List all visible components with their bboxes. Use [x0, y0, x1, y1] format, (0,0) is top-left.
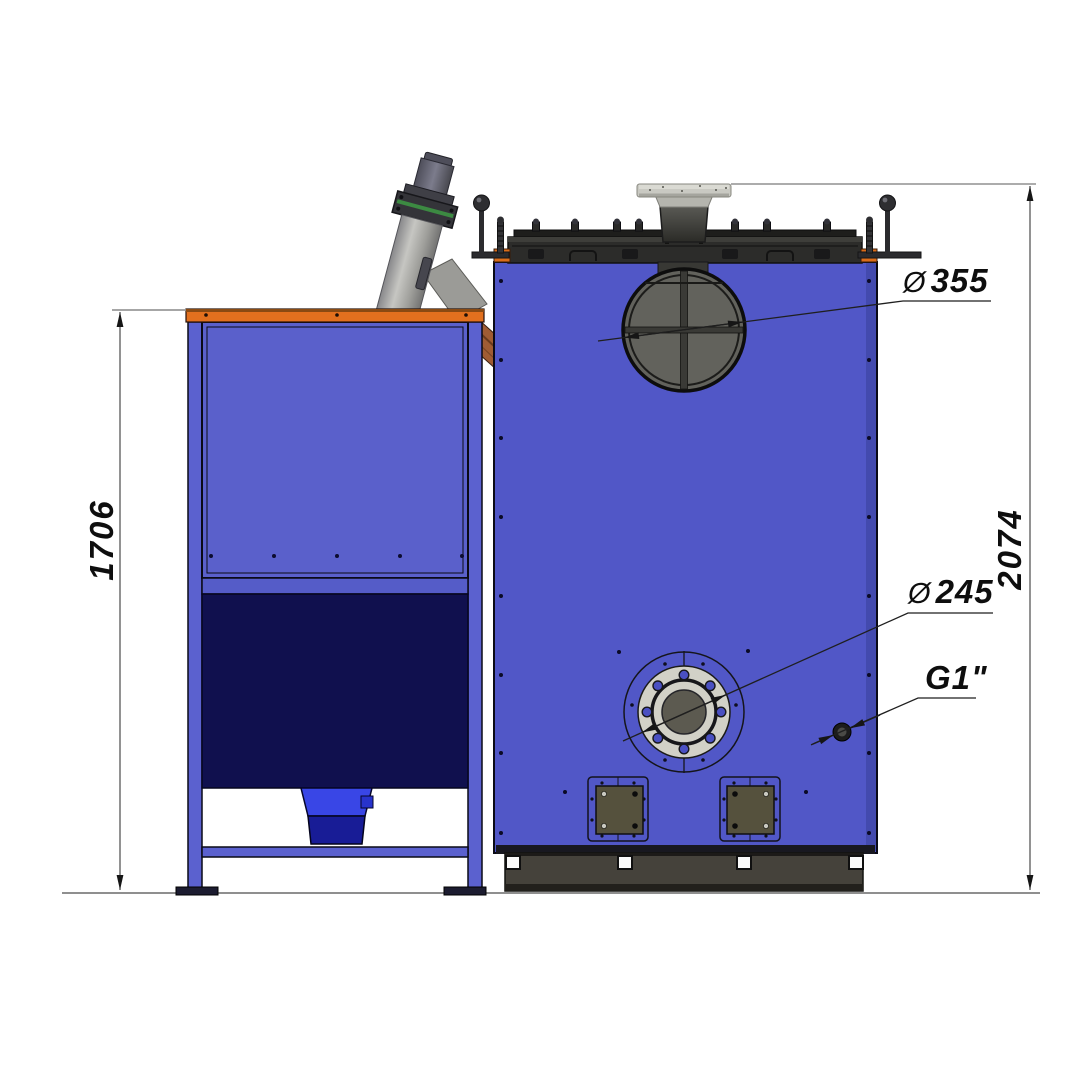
- drawing-svg: [0, 0, 1078, 1078]
- dimension-label-overall-height: 2074: [992, 489, 1028, 609]
- fuel-hopper: [176, 309, 486, 895]
- hopper-left-leg: [188, 322, 202, 888]
- callout-label-flange-diameter: Ø245: [908, 575, 994, 609]
- callout-value: G1": [925, 659, 988, 696]
- callout-value: 245: [936, 573, 994, 610]
- lifting-handle-right: [858, 195, 921, 258]
- dimension-label-hopper-height: 1706: [84, 480, 120, 600]
- hopper-lower-panel: [202, 594, 468, 788]
- callout-label-pipe-thread: G1": [920, 661, 988, 695]
- hopper-right-leg: [468, 322, 482, 888]
- diameter-symbol: Ø: [903, 267, 931, 299]
- hopper-left-foot: [176, 887, 218, 895]
- body-edge-shade: [866, 263, 876, 851]
- threaded-stud: [867, 222, 873, 253]
- hopper-mid-rail: [202, 578, 468, 594]
- hopper-upper-panel: [202, 322, 468, 578]
- hopper-cross-bar: [202, 847, 468, 857]
- rim-top-edge: [186, 309, 484, 312]
- technical-drawing-canvas: 1706 2074 Ø355 Ø245 G1": [0, 0, 1078, 1078]
- lifting-handle-left: [472, 195, 509, 258]
- boiler: [472, 184, 921, 891]
- flue-flange: [637, 184, 731, 197]
- access-panel-right: [720, 777, 780, 841]
- flue-pipe: [660, 206, 708, 242]
- ball-knob: [474, 195, 490, 211]
- ball-knob: [880, 195, 896, 211]
- boiler-base: [505, 853, 863, 891]
- hopper-right-foot: [444, 887, 486, 895]
- hopper-funnel: [301, 788, 373, 844]
- flange-opening: [662, 690, 706, 734]
- access-panel-left: [588, 777, 648, 841]
- diameter-symbol: Ø: [908, 578, 936, 610]
- callout-value: 355: [931, 262, 989, 299]
- dimension-value: 1706: [83, 499, 120, 580]
- dimension-value: 2074: [991, 508, 1028, 589]
- callout-label-flue-diameter: Ø355: [903, 264, 989, 298]
- threaded-stud: [498, 222, 504, 253]
- burner-flange: [624, 651, 744, 773]
